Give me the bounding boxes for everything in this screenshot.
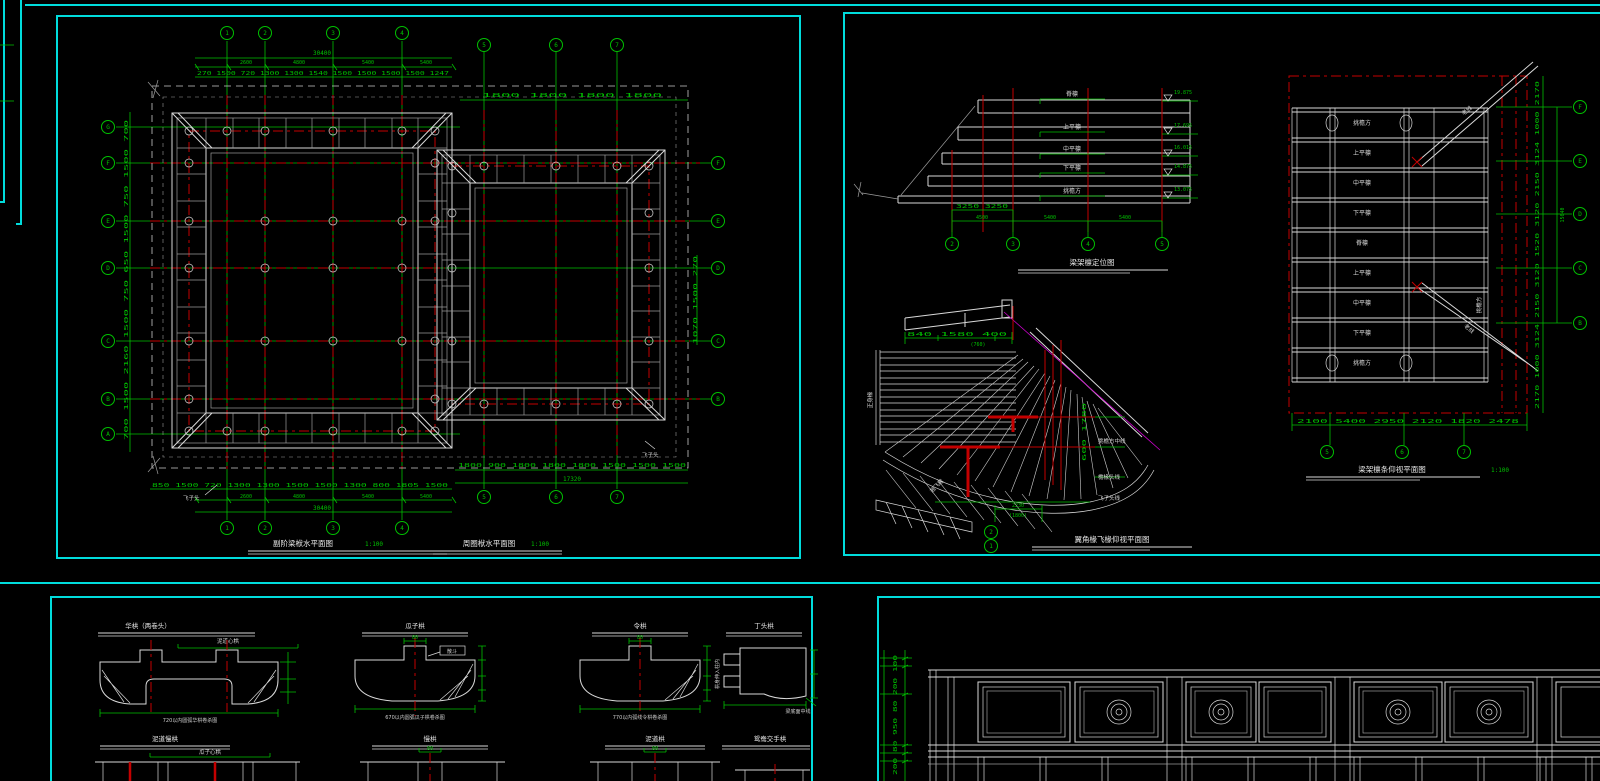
svg-text:E: E xyxy=(1578,158,1582,165)
dim-text: 850 1500 720 1300 1300 1500 1500 1300 80… xyxy=(152,483,448,489)
drawing-scale: 1:100 xyxy=(531,541,549,548)
svg-text:B: B xyxy=(106,396,110,403)
detail-title: 泥道慢栱 xyxy=(152,734,179,743)
svg-text:3: 3 xyxy=(1011,241,1015,248)
detail-mangong: 慢栱 80 xyxy=(360,734,505,781)
svg-text:1: 1 xyxy=(225,525,229,532)
purlin-section: 脊檩 上平檩 中平檩 下平檩 挑檐方 19.875 17.695 16.015 … xyxy=(854,88,1198,273)
detail-linggong: 令栱 80 770以内弧线令栱卷杀图 xyxy=(580,621,711,721)
dim-text: 200 80 950 80 200 100 xyxy=(893,655,899,775)
level-label: 挑檐方 xyxy=(1063,187,1081,195)
svg-text:A: A xyxy=(106,431,110,438)
level-label: 下平檩 xyxy=(1063,164,1081,172)
feizitou-label: 飞子头 xyxy=(642,451,659,459)
detail-sublabel: 瓜子心栱 xyxy=(199,748,222,756)
dim-text: 1800 900 1800 1800 1800 1500 1500 1500 xyxy=(458,463,686,469)
column-nodes xyxy=(185,127,653,435)
purlin-row-label: 挑檐方 xyxy=(1353,359,1371,367)
svg-text:2: 2 xyxy=(263,525,267,532)
left-partial-viewport-border xyxy=(0,0,21,224)
purlin-row-label: 挑檐方 xyxy=(1353,119,1371,127)
dim-text: 5400 xyxy=(362,494,374,500)
level-markers xyxy=(1164,95,1172,198)
level-elevation: 14.875 xyxy=(1174,164,1192,170)
detail-title: 丁头栱 xyxy=(754,621,774,630)
cad-canvas[interactable]: 30400 2600 4800 5400 5400 270 1500 720 1… xyxy=(0,0,1600,781)
svg-text:3: 3 xyxy=(331,30,335,37)
dim-text: (760) xyxy=(970,342,985,348)
drawing-title: 梁架檩条仰视平面图 xyxy=(1358,464,1426,474)
svg-text:3: 3 xyxy=(331,525,335,532)
purlin-row-label: 上平檩 xyxy=(1353,149,1371,157)
lian-yan-bar xyxy=(876,500,972,539)
svg-text:4: 4 xyxy=(400,525,404,532)
svg-text:D: D xyxy=(716,265,720,272)
svg-text:7: 7 xyxy=(1462,449,1466,456)
lower-panel-stiles xyxy=(978,757,1592,781)
hip-label: 老戗 xyxy=(1462,322,1476,336)
drawing-scale: 1:100 xyxy=(365,541,383,548)
level-elevation: 16.015 xyxy=(1174,145,1192,151)
dim-text: 30400 xyxy=(313,505,331,512)
detail-title: 瓜子栱 xyxy=(405,621,425,630)
svg-text:7: 7 xyxy=(615,494,619,501)
dim-text: 4500 xyxy=(976,215,988,221)
dim-text: 2100 5400 2950 2120 1820 2478 xyxy=(1297,419,1519,425)
leader-label: 挑檐方中线 xyxy=(1098,437,1126,445)
detail-huagong: 华栱（两卷头） 泥道心栱 720以内圆弧华栱卷杀图 xyxy=(98,621,298,724)
dim-text: 15040 xyxy=(1560,207,1566,222)
drawing-title: 翼角椽飞椽仰视平面图 xyxy=(1075,534,1150,544)
dim-text: 80 xyxy=(427,746,433,752)
detail-title: 鸳鸯交手栱 xyxy=(754,734,787,743)
purlin-row-label: 下平檩 xyxy=(1353,209,1371,217)
svg-text:F: F xyxy=(716,160,720,167)
dim-text: 30400 xyxy=(313,50,331,57)
dim-text: 5400 xyxy=(420,60,432,66)
corner-braces xyxy=(437,150,665,420)
svg-text:F: F xyxy=(1578,104,1582,111)
svg-text:B: B xyxy=(716,396,720,403)
dim-text: 17320 xyxy=(563,476,581,483)
dim-text: 80 xyxy=(412,635,418,641)
purlin-plan: 挑檐方 上平檩 中平檩 下平檩 脊檩 上平檩 中平檩 下平檩 挑檐方 老戗 老戗… xyxy=(1289,62,1587,480)
detail-note: 720以内圆弧华栱卷杀图 xyxy=(163,717,218,724)
detail-nidaomangong: 泥道慢栱 瓜子心栱 xyxy=(95,734,300,781)
svg-text:4: 4 xyxy=(1086,241,1090,248)
svg-text:5: 5 xyxy=(482,42,486,49)
axis-bubbles-cols: 12345671234567 xyxy=(221,27,624,535)
level-label: 上平檩 xyxy=(1063,123,1081,131)
axis-bubbles-rows-right: FEDCB xyxy=(712,157,725,406)
detail-side-label: 栱身伸入柱内 xyxy=(714,659,721,689)
upper-panels xyxy=(978,682,1600,742)
svg-text:5: 5 xyxy=(482,494,486,501)
dim-text: 1800 1800 1800 1800 xyxy=(482,93,662,99)
svg-text:D: D xyxy=(1578,211,1582,218)
dim-text: 700 1500 2160 1500 750 650 1500 750 1500… xyxy=(124,120,130,440)
side-label: 挑檐方 xyxy=(1475,296,1483,313)
detail-title: 令栱 xyxy=(634,621,648,630)
detail-nidaogong: 泥道栱 80 xyxy=(590,734,720,781)
svg-text:2: 2 xyxy=(989,529,993,536)
axis-bubbles: 21 xyxy=(985,526,998,553)
purlin-row-label: 脊檩 xyxy=(1356,239,1368,247)
viewport-roof-border[interactable] xyxy=(844,13,1600,555)
svg-text:6: 6 xyxy=(554,494,558,501)
detail-note: 梁底面中线 xyxy=(785,708,810,715)
axis-bubbles: 2345 xyxy=(946,238,1169,251)
svg-text:2: 2 xyxy=(950,241,954,248)
drawing-title: 周圈栿水平面图 xyxy=(463,538,516,548)
axis-bubbles: 567 xyxy=(1321,446,1471,459)
level-elevation: 17.695 xyxy=(1174,123,1192,129)
corner-beam xyxy=(1030,328,1148,437)
dim-text: 5400 xyxy=(1119,215,1131,221)
detail-yuanyanggong: 鸳鸯交手栱 xyxy=(722,734,810,781)
dim-text: 840 1580 400 xyxy=(907,332,1007,338)
svg-text:E: E xyxy=(716,218,720,225)
detail-title: 慢栱 xyxy=(424,734,438,743)
leader-label: 正身椽 xyxy=(866,391,874,408)
dim-text: 1070 1500 270 xyxy=(693,256,699,344)
detail-note: 770以内弧线令栱卷杀图 xyxy=(613,714,668,721)
dim-text: 4800 xyxy=(293,60,305,66)
svg-text:1: 1 xyxy=(989,543,993,550)
svg-text:4: 4 xyxy=(400,30,404,37)
leader-label: 飞子头线 xyxy=(1098,494,1121,502)
detail-sublabel: 泥道心栱 xyxy=(217,637,240,645)
ring2-structure xyxy=(437,150,665,420)
dim-text: 5400 xyxy=(420,494,432,500)
bracket-details: 华栱（两卷头） 泥道心栱 720以内圆弧华栱卷杀图 瓜子栱 80 散斗 670以… xyxy=(95,621,818,781)
dim-text: 80 xyxy=(652,746,658,752)
svg-text:B: B xyxy=(1578,320,1582,327)
svg-text:5: 5 xyxy=(1160,241,1164,248)
svg-text:1: 1 xyxy=(225,30,229,37)
level-elevation: 13.075 xyxy=(1174,187,1192,193)
dim-text: 270 1500 720 1300 1300 1540 1500 1500 15… xyxy=(197,71,449,77)
detail-dingtougong: 丁头栱 梁底面中线 栱身伸入柱内 xyxy=(714,621,818,715)
dim-text: 5400 xyxy=(362,60,374,66)
detail-sublabel: 散斗 xyxy=(447,648,457,655)
dim-text: 80 xyxy=(637,635,643,641)
feizitou-label: 飞子头 xyxy=(183,494,200,502)
level-label: 脊檩 xyxy=(1066,90,1078,98)
purlin-row-label: 下平檩 xyxy=(1353,329,1371,337)
svg-text:C: C xyxy=(1578,265,1582,272)
dim-text: 2600 xyxy=(240,494,252,500)
drawing-scale: 1:100 xyxy=(1491,467,1509,474)
svg-text:2: 2 xyxy=(263,30,267,37)
svg-text:D: D xyxy=(106,265,110,272)
axis-bubbles: FEDCB xyxy=(1574,101,1587,330)
level-label: 中平檩 xyxy=(1063,145,1081,153)
dim-text: 3250 3250 xyxy=(956,204,1008,210)
panel-elevation: 200 80 950 80 200 100 xyxy=(880,650,1600,781)
purlin-row-label: 上平檩 xyxy=(1353,269,1371,277)
dim-text: 600 1780 xyxy=(1082,403,1088,461)
dim-lines xyxy=(130,58,697,512)
platform-outline xyxy=(152,86,688,468)
svg-text:C: C xyxy=(106,338,110,345)
svg-text:6: 6 xyxy=(554,42,558,49)
detail-title: 泥道栱 xyxy=(645,734,665,743)
purlin-row-label: 中平檩 xyxy=(1353,179,1371,187)
straight-rafters xyxy=(876,350,1016,445)
purlin-row-label: 中平檩 xyxy=(1353,299,1371,307)
svg-text:7: 7 xyxy=(615,42,619,49)
plan-viewport-content: 30400 2600 4800 5400 5400 270 1500 720 1… xyxy=(102,27,725,555)
svg-text:5: 5 xyxy=(1325,449,1329,456)
dim-text: (1800) xyxy=(1009,513,1027,519)
leader-label: 檐椽头线 xyxy=(1098,473,1121,481)
drawing-title: 副阶梁栿水平面图 xyxy=(273,538,333,548)
dim-text: 2600 xyxy=(240,60,252,66)
dim-text: 4800 xyxy=(293,494,305,500)
dim-text: 2170 1000 3124 2150 3120 1520 3120 2150 … xyxy=(1535,81,1541,409)
svg-text:F: F xyxy=(106,160,110,167)
svg-text:6: 6 xyxy=(1400,449,1404,456)
eave-flick xyxy=(148,80,160,474)
detail-title: 华栱（两卷头） xyxy=(125,621,171,630)
svg-text:G: G xyxy=(106,124,110,131)
detail-guazigong: 瓜子栱 80 散斗 670以内圆弧瓜子栱卷杀图 xyxy=(355,621,486,721)
centerlines xyxy=(150,95,700,470)
level-elevation: 19.875 xyxy=(1174,90,1192,96)
viewport-elevation-border[interactable] xyxy=(878,597,1600,781)
svg-text:E: E xyxy=(106,218,110,225)
svg-text:C: C xyxy=(716,338,720,345)
detail-note: 670以内圆弧瓜子栱卷杀图 xyxy=(385,714,445,721)
dim-text: 2230 xyxy=(1012,503,1024,509)
corner-rafter-detail: 840 1580 400 (760) 600 1780 挑檐方中线 xyxy=(866,300,1192,553)
dim-text: 5400 xyxy=(1044,215,1056,221)
drawing-title: 梁架檩定位图 xyxy=(1070,257,1115,267)
axis-bubbles-rows-left: GFEDCBA xyxy=(102,121,115,441)
